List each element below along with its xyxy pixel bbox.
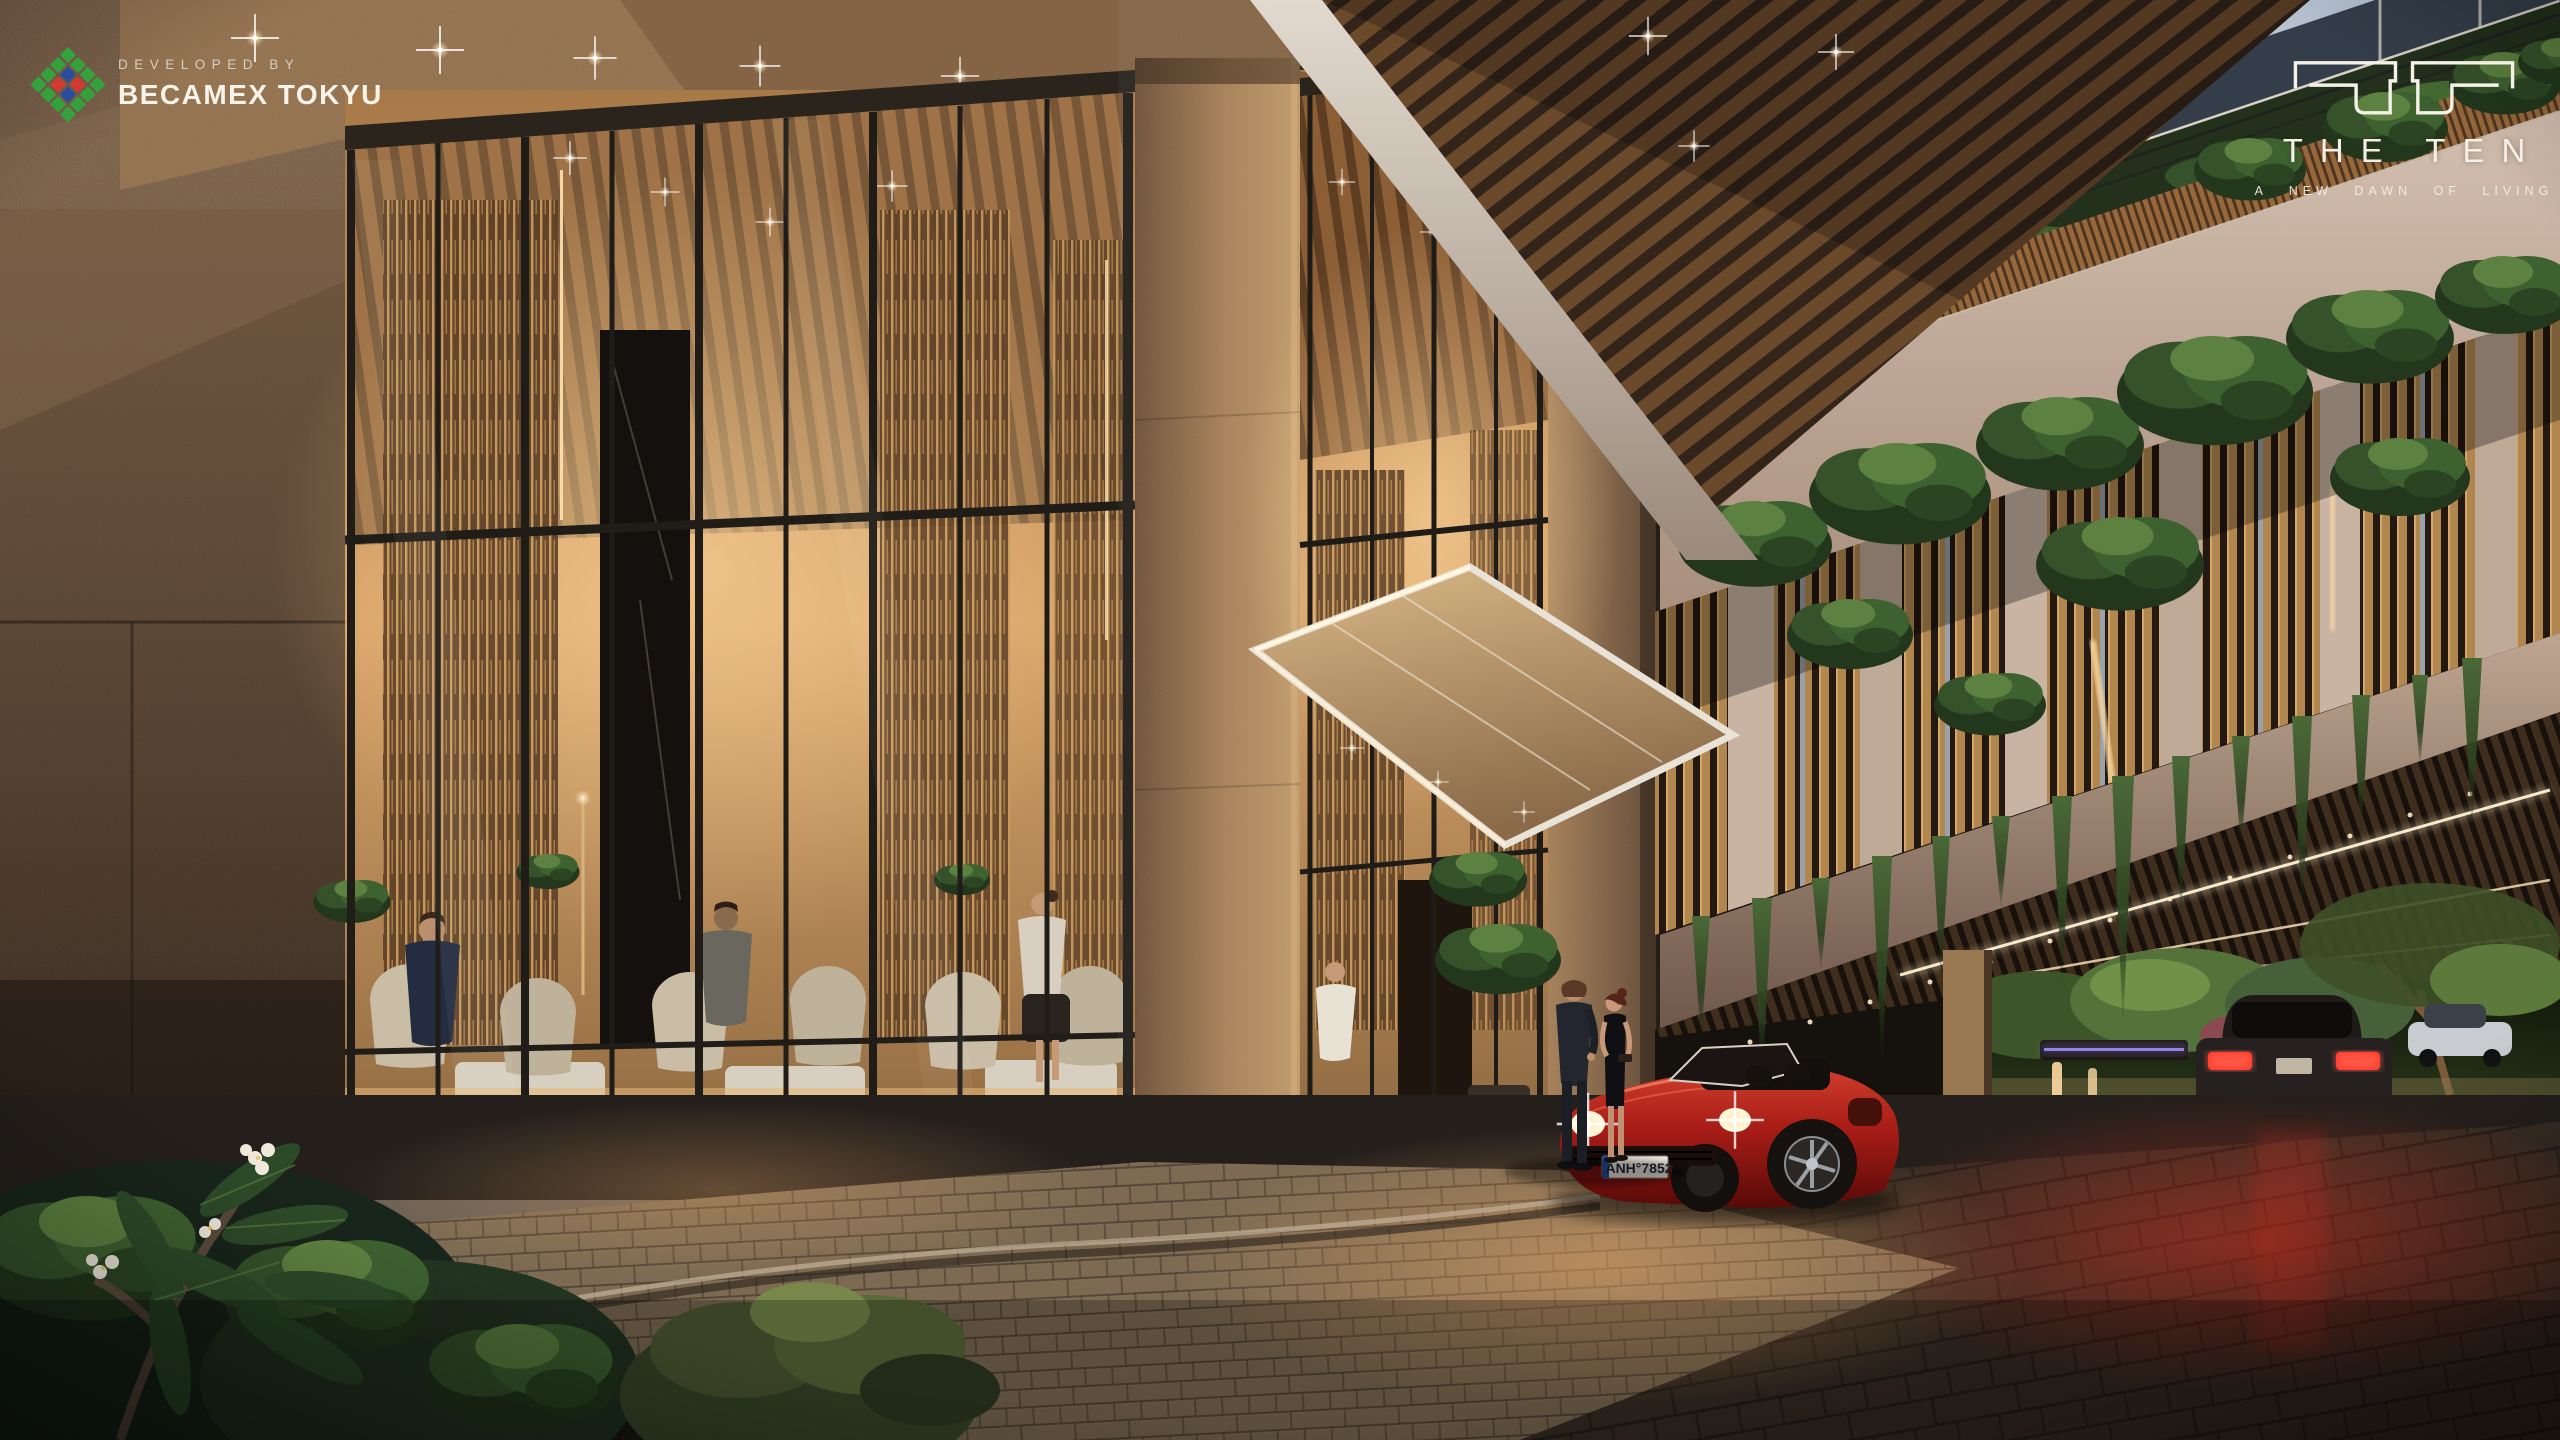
- scene-illustration: ANH°7852: [0, 0, 2560, 1440]
- developer-pretitle: DEVELOPED BY: [118, 57, 383, 72]
- vignette: [0, 0, 2560, 1440]
- project-logo: THE TEN A NEW DAWN OF LIVING: [2266, 50, 2542, 198]
- ten-monogram-icon: [2278, 50, 2530, 116]
- becamex-tokyu-diamond-icon: [31, 47, 105, 121]
- project-name: THE TEN: [2266, 132, 2543, 170]
- developer-badge: DEVELOPED BY BECAMEX TOKYU: [36, 52, 383, 116]
- scene-stage: ANH°7852 DEVELOPED BY BECAMEX TOKYU: [0, 0, 2560, 1440]
- project-tagline: A NEW DAWN OF LIVING: [2255, 184, 2554, 198]
- developer-name: BECAMEX TOKYU: [118, 79, 383, 111]
